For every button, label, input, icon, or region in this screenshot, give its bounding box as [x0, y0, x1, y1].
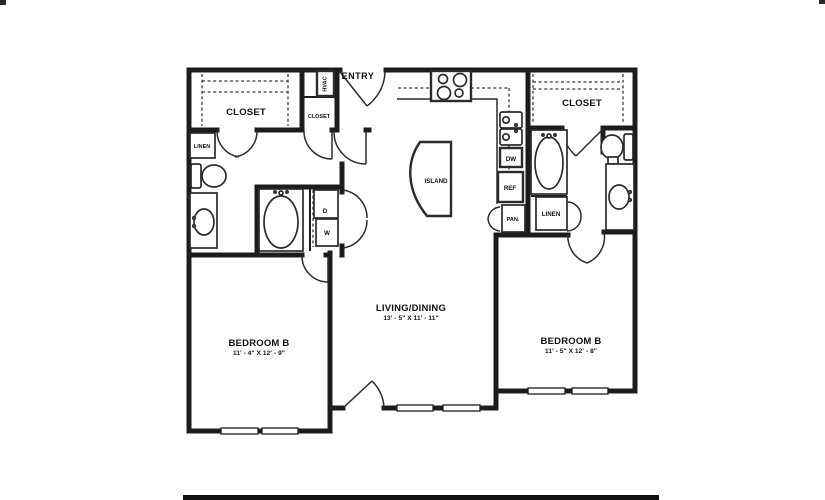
- toilet-right: [601, 134, 633, 160]
- washer-dryer-stack: [314, 190, 338, 246]
- bedroom-right-dims: 11' - 5" X 12' - 8": [545, 348, 597, 355]
- washer-label: W: [324, 230, 330, 237]
- linen-left-label: LINEN: [194, 144, 211, 150]
- refrigerator-label: REF: [504, 185, 517, 192]
- hvac-label: HVAC: [322, 76, 328, 91]
- stove: [431, 71, 471, 101]
- vanity-sink-left: [190, 193, 217, 248]
- closet-hall-label: CLOSET: [308, 114, 331, 120]
- living-dining-label: LIVING/DINING: [376, 303, 446, 314]
- living-dining-dims: 13' - 5" X 11' - 11": [383, 315, 438, 322]
- closet-left-label: CLOSET: [226, 107, 266, 118]
- bathtub-left: [259, 189, 303, 251]
- vanity-sink-right: [606, 157, 634, 230]
- dryer-label: D: [323, 208, 328, 215]
- entry-label: ENTRY: [342, 71, 375, 81]
- bedroom-left-label: BEDROOM B: [229, 338, 290, 349]
- bathtub-right: [531, 130, 567, 194]
- linen-right-label: LINEN: [542, 211, 561, 218]
- island-label: ISLAND: [424, 178, 448, 185]
- windows: [221, 388, 608, 434]
- bedroom-right-label: BEDROOM B: [541, 336, 602, 347]
- pantry-label: PAN.: [507, 217, 520, 223]
- scan-artifacts: [0, 0, 825, 500]
- walls: [189, 70, 635, 431]
- toilet-left: [191, 164, 226, 188]
- floor-plan-image: ENTRY CLOSET CLOSET CLOSET HVAC LINEN LI…: [0, 0, 825, 500]
- closet-right-label: CLOSET: [562, 98, 602, 109]
- dishwasher-label: DW: [506, 156, 516, 163]
- floor-plan-canvas: ENTRY CLOSET CLOSET CLOSET HVAC LINEN LI…: [0, 0, 825, 500]
- kitchen-sink: [500, 112, 522, 145]
- bedroom-left-dims: 11' - 4" X 12' - 9": [233, 350, 285, 357]
